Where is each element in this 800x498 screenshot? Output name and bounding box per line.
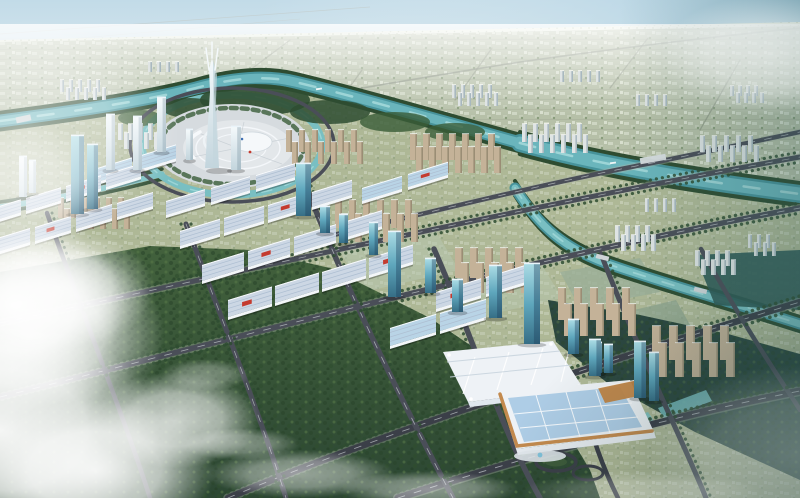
residential-roof (528, 134, 533, 135)
residential-roof (572, 134, 577, 135)
residential-roof (397, 213, 404, 214)
residential-slab-shade (322, 142, 324, 164)
residential-roof (429, 146, 436, 147)
residential-roof (583, 134, 588, 135)
residential-roof (442, 146, 449, 147)
residential-roof (470, 247, 478, 248)
residential-slab-shade (525, 124, 527, 142)
residential-roof (566, 123, 571, 124)
residential-roof (305, 141, 311, 142)
residential-roof (488, 133, 495, 134)
residential-slab-shade (469, 93, 471, 106)
residential-roof (564, 303, 572, 304)
residential-slab-shade (342, 130, 344, 152)
residential-roof (175, 61, 179, 62)
residential-roof (596, 70, 600, 71)
residential-slab-shade (558, 124, 560, 142)
residential-slab-shade (618, 226, 620, 242)
residential-slab-shade (329, 130, 331, 152)
residential-roof (467, 92, 471, 93)
residential-slab-shade (562, 71, 564, 82)
residential-slab-shade (499, 147, 501, 173)
residential-slab-shade (296, 142, 298, 164)
residential-slab-shade (564, 135, 566, 153)
plaza-detail (249, 151, 252, 154)
residential-roof (569, 70, 573, 71)
residential-roof (286, 129, 292, 130)
residential-roof (468, 146, 475, 147)
hall-a-pylon (469, 397, 473, 401)
residential-roof (485, 92, 489, 93)
residential-roof (558, 287, 566, 288)
residential-roof (574, 287, 582, 288)
residential-roof (494, 92, 498, 93)
residential-roof (494, 146, 501, 147)
residential-slab-shade (598, 71, 600, 82)
hall-a-pylon (447, 353, 451, 357)
residential-roof (533, 123, 538, 124)
residential-slab-shade (496, 93, 498, 106)
residential-roof (506, 262, 514, 263)
residential-slab-shade (531, 135, 533, 153)
residential-roof (455, 146, 462, 147)
residential-slab-shade (553, 135, 555, 153)
residential-roof (331, 141, 337, 142)
residential-roof (383, 213, 390, 214)
residential-roof (458, 92, 462, 93)
cloud-wisp (160, 359, 250, 391)
aerial-masterplan-render (0, 0, 800, 498)
residential-roof (590, 287, 598, 288)
residential-slab-shade (575, 135, 577, 153)
residential-roof (488, 84, 492, 85)
residential-roof (470, 84, 474, 85)
residential-roof (500, 247, 508, 248)
residential-slab-shade (460, 93, 462, 106)
residential-roof (485, 247, 493, 248)
residential-slab-shade (290, 130, 292, 152)
residential-slab-shade (486, 147, 488, 173)
residential-slab-shade (316, 130, 318, 152)
forest-blob (360, 112, 430, 132)
residential-roof (405, 199, 412, 200)
residential-roof (436, 133, 443, 134)
residential-roof (544, 123, 549, 124)
residential-roof (312, 129, 318, 130)
residential-roof (539, 134, 544, 135)
residential-roof (578, 70, 582, 71)
residential-slab-shade (542, 135, 544, 153)
residential-roof (612, 303, 620, 304)
residential-slab-shade (168, 62, 170, 72)
residential-roof (476, 92, 480, 93)
residential-roof (555, 123, 560, 124)
plaza-detail (241, 138, 244, 141)
residential-roof (351, 129, 357, 130)
residential-roof (423, 133, 430, 134)
render-canvas (0, 0, 800, 498)
residential-roof (615, 225, 620, 226)
residential-slab-shade (463, 85, 465, 98)
residential-roof (449, 133, 456, 134)
residential-slab-shade (602, 304, 604, 336)
residential-roof (522, 123, 527, 124)
residential-roof (476, 262, 484, 263)
residential-slab-shade (309, 142, 311, 164)
residential-roof (344, 141, 350, 142)
residential-slab-shade (303, 130, 305, 152)
residential-roof (561, 134, 566, 135)
residential-slab-shade (589, 71, 591, 82)
residential-roof (475, 133, 482, 134)
residential-roof (455, 247, 463, 248)
residential-roof (299, 129, 305, 130)
residential-slab-shade (487, 93, 489, 106)
residential-roof (479, 84, 483, 85)
residential-slab-shade (490, 85, 492, 98)
residential-roof (491, 262, 499, 263)
residential-slab-shade (481, 85, 483, 98)
residential-roof (338, 129, 344, 130)
residential-slab-shade (348, 142, 350, 164)
residential-slab-shade (586, 304, 588, 336)
residential-slab-shade (416, 214, 418, 242)
residential-slab-shade (177, 62, 179, 72)
residential-slab-shade (478, 93, 480, 106)
residential-roof (148, 61, 152, 62)
residential-slab-shade (355, 130, 357, 152)
residential-roof (166, 61, 170, 62)
hall-a-pylon (549, 342, 553, 346)
residential-roof (391, 199, 398, 200)
residential-slab-shade (547, 124, 549, 142)
residential-roof (357, 141, 363, 142)
residential-roof (462, 133, 469, 134)
residential-slab-shade (472, 85, 474, 98)
residential-slab-shade (454, 85, 456, 98)
residential-slab-shade (421, 147, 423, 173)
residential-roof (318, 141, 324, 142)
residential-roof (606, 287, 614, 288)
residential-roof (577, 123, 582, 124)
residential-slab-shade (402, 214, 404, 242)
residential-roof (157, 61, 161, 62)
residential-roof (461, 84, 465, 85)
residential-roof (452, 84, 456, 85)
residential-roof (292, 141, 298, 142)
residential-slab-shade (159, 62, 161, 72)
residential-slab-shade (586, 135, 588, 153)
residential-roof (416, 146, 423, 147)
residential-roof (580, 303, 588, 304)
residential-roof (355, 213, 362, 214)
residential-slab-shade (580, 124, 582, 142)
residential-roof (481, 146, 488, 147)
residential-roof (515, 247, 523, 248)
residential-roof (550, 134, 555, 135)
residential-slab-shade (580, 71, 582, 82)
residential-roof (461, 262, 469, 263)
residential-slab-shade (571, 71, 573, 82)
residential-roof (410, 133, 417, 134)
residential-roof (411, 213, 418, 214)
residential-roof (587, 70, 591, 71)
residential-slab-shade (536, 124, 538, 142)
residential-slab-shade (569, 124, 571, 142)
residential-slab-shade (335, 142, 337, 164)
residential-slab-shade (361, 142, 363, 164)
residential-slab-shade (473, 147, 475, 173)
residential-slab-shade (460, 147, 462, 173)
residential-roof (560, 70, 564, 71)
residential-roof (325, 129, 331, 130)
residential-slab-shade (482, 263, 484, 293)
residential-roof (596, 303, 604, 304)
